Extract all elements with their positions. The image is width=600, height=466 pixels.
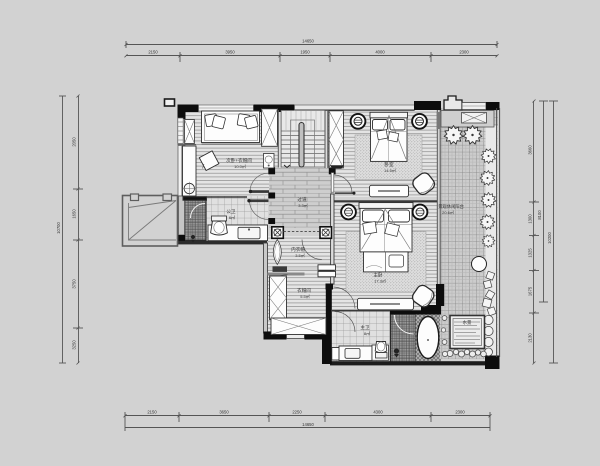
svg-text:主卫: 主卫 xyxy=(360,324,370,330)
svg-text:1300: 1300 xyxy=(528,214,533,224)
svg-text:8㎡: 8㎡ xyxy=(364,330,370,336)
svg-text:14650: 14650 xyxy=(302,422,314,427)
svg-text:2050: 2050 xyxy=(72,137,77,147)
svg-text:6㎡: 6㎡ xyxy=(229,214,235,220)
svg-text:14.5㎡: 14.5㎡ xyxy=(384,167,396,173)
svg-text:10700: 10700 xyxy=(56,222,61,234)
svg-text:1650: 1650 xyxy=(72,209,77,219)
svg-text:2150: 2150 xyxy=(148,50,158,55)
svg-text:4000: 4000 xyxy=(375,50,385,55)
svg-text:3.5㎡: 3.5㎡ xyxy=(295,252,305,258)
svg-text:水景: 水景 xyxy=(463,319,472,326)
svg-text:3950: 3950 xyxy=(225,50,235,55)
svg-text:2300: 2300 xyxy=(455,410,465,415)
svg-text:4300: 4300 xyxy=(373,410,383,415)
svg-text:10.0㎡: 10.0㎡ xyxy=(234,163,246,169)
svg-text:2300: 2300 xyxy=(459,50,469,55)
svg-text:2130: 2130 xyxy=(528,333,533,343)
svg-text:3250: 3250 xyxy=(72,340,77,350)
svg-text:3660: 3660 xyxy=(528,145,533,155)
svg-text:10200: 10200 xyxy=(547,232,552,244)
svg-text:1325: 1325 xyxy=(528,248,533,258)
svg-text:8100: 8100 xyxy=(537,210,542,220)
svg-text:14650: 14650 xyxy=(302,39,314,44)
svg-text:2150: 2150 xyxy=(147,410,157,415)
svg-text:3650: 3650 xyxy=(219,410,229,415)
svg-text:1675: 1675 xyxy=(528,286,533,296)
svg-text:公卫: 公卫 xyxy=(226,209,236,214)
svg-text:内衣帽: 内衣帽 xyxy=(291,246,305,253)
svg-text:过道: 过道 xyxy=(297,196,307,203)
svg-text:次卧+衣帽间: 次卧+衣帽间 xyxy=(226,157,252,164)
svg-text:景观休闲阳台: 景观休闲阳台 xyxy=(438,203,464,210)
svg-text:主卧: 主卧 xyxy=(373,272,383,279)
svg-text:2250: 2250 xyxy=(292,410,302,415)
svg-text:3.3㎡: 3.3㎡ xyxy=(298,202,308,208)
svg-text:20.6㎡: 20.6㎡ xyxy=(442,209,454,215)
svg-text:3750: 3750 xyxy=(72,279,77,289)
svg-text:衣帽间: 衣帽间 xyxy=(297,287,311,294)
svg-text:1950: 1950 xyxy=(300,50,310,55)
svg-text:17.3㎡: 17.3㎡ xyxy=(374,278,386,284)
svg-text:5.5㎡: 5.5㎡ xyxy=(300,293,310,299)
svg-text:卧室: 卧室 xyxy=(384,161,394,168)
